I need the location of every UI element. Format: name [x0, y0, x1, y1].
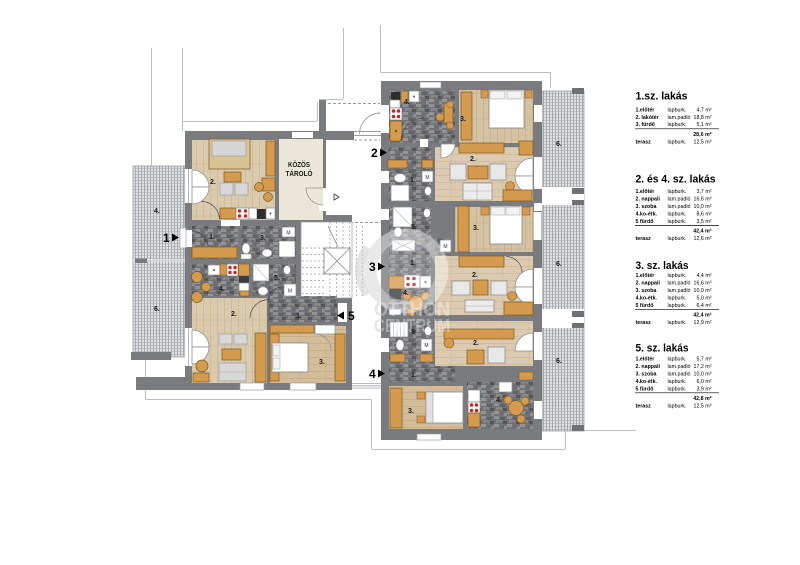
svg-text:lapburk.: lapburk.: [668, 236, 687, 242]
svg-text:28,6 m²: 28,6 m²: [693, 132, 711, 138]
svg-text:5 fürdő: 5 fürdő: [636, 303, 655, 309]
svg-text:3.: 3.: [473, 225, 479, 232]
svg-text:3,9 m²: 3,9 m²: [696, 387, 711, 393]
svg-text:4.: 4.: [496, 397, 502, 404]
svg-text:1.: 1.: [410, 260, 416, 267]
svg-text:KÖZÖS: KÖZÖS: [288, 160, 310, 169]
svg-text:10,0 m²: 10,0 m²: [694, 288, 712, 294]
svg-text:1: 1: [163, 231, 170, 245]
svg-text:5: 5: [411, 329, 415, 336]
svg-text:10,0 m²: 10,0 m²: [694, 372, 712, 378]
svg-text:6,0 m²: 6,0 m²: [696, 379, 711, 385]
svg-text:1.: 1.: [411, 372, 417, 379]
svg-text:4.ko-étk.: 4.ko-étk.: [636, 296, 658, 302]
svg-text:M: M: [286, 231, 290, 237]
svg-text:lam.padló: lam.padló: [668, 197, 691, 203]
svg-text:terasz: terasz: [636, 236, 652, 242]
svg-text:2. nappali: 2. nappali: [636, 281, 661, 287]
svg-text:42,4 m²: 42,4 m²: [693, 228, 711, 234]
svg-text:M: M: [288, 289, 292, 295]
svg-text:lapburk.: lapburk.: [668, 357, 687, 363]
svg-text:lapburk.: lapburk.: [668, 189, 687, 195]
svg-text:2.: 2.: [470, 156, 476, 163]
svg-text:lam.padló: lam.padló: [668, 281, 691, 287]
svg-text:lapburk.: lapburk.: [668, 140, 687, 146]
svg-text:4: 4: [369, 367, 376, 381]
svg-text:lapburk.: lapburk.: [668, 379, 687, 385]
svg-text:3. szoba: 3. szoba: [636, 288, 657, 294]
svg-text:1.előtér: 1.előtér: [636, 108, 655, 114]
svg-text:1.: 1.: [209, 234, 215, 241]
svg-text:3. fürdő: 3. fürdő: [636, 122, 656, 128]
svg-text:TÁROLÓ: TÁROLÓ: [286, 169, 313, 178]
svg-text:4.: 4.: [219, 286, 225, 293]
svg-text:12,9 m²: 12,9 m²: [694, 320, 712, 326]
svg-text:M: M: [425, 175, 429, 181]
svg-text:42,4 m²: 42,4 m²: [693, 312, 711, 318]
svg-text:5: 5: [348, 309, 355, 323]
svg-text:5.: 5.: [274, 275, 280, 282]
svg-text:lapburk.: lapburk.: [668, 108, 687, 114]
svg-text:M: M: [443, 244, 447, 250]
svg-text:3.: 3.: [260, 235, 266, 242]
svg-text:1.előtér: 1.előtér: [636, 357, 655, 363]
svg-text:5.: 5.: [411, 224, 417, 231]
svg-text:2: 2: [371, 146, 378, 160]
svg-text:2.: 2.: [472, 272, 478, 279]
svg-text:2. nappali: 2. nappali: [636, 364, 661, 370]
svg-text:2.: 2.: [473, 340, 479, 347]
svg-text:1.előtér: 1.előtér: [636, 189, 655, 195]
svg-text:18,8 m²: 18,8 m²: [694, 115, 712, 121]
svg-text:12,6 m²: 12,6 m²: [694, 236, 712, 242]
svg-text:16,6 m²: 16,6 m²: [694, 197, 712, 203]
svg-text:lam.padló: lam.padló: [668, 372, 691, 378]
svg-text:lapburk.: lapburk.: [668, 212, 687, 218]
svg-text:lapburk.: lapburk.: [668, 296, 687, 302]
svg-text:10,0 m²: 10,0 m²: [694, 204, 712, 210]
svg-text:lapburk.: lapburk.: [668, 320, 687, 326]
svg-text:2. és 4. sz. lakás: 2. és 4. sz. lakás: [636, 174, 716, 186]
svg-text:4.ko-étk.: 4.ko-étk.: [636, 379, 658, 385]
svg-text:16,6 m²: 16,6 m²: [694, 281, 712, 287]
svg-text:4.ko-étk.: 4.ko-étk.: [636, 212, 658, 218]
svg-text:3: 3: [369, 260, 376, 274]
svg-text:3.: 3.: [408, 408, 414, 415]
svg-text:terasz: terasz: [636, 403, 652, 409]
svg-text:1.sz. lakás: 1.sz. lakás: [636, 91, 688, 103]
svg-text:8,6 m²: 8,6 m²: [696, 212, 711, 218]
svg-text:17,2 m²: 17,2 m²: [694, 364, 712, 370]
svg-text:lam.padló: lam.padló: [668, 364, 691, 370]
svg-text:6.: 6.: [556, 141, 562, 148]
svg-text:lapburk.: lapburk.: [668, 219, 687, 225]
svg-text:2.: 2.: [231, 311, 237, 318]
svg-text:5,7 m²: 5,7 m²: [696, 357, 711, 363]
svg-text:12,5 m²: 12,5 m²: [694, 140, 712, 146]
svg-text:6.: 6.: [154, 306, 160, 313]
svg-text:2. nappali: 2. nappali: [636, 197, 661, 203]
svg-text:M: M: [424, 343, 428, 349]
svg-text:5 fürdő: 5 fürdő: [636, 219, 655, 225]
svg-text:5,0 m²: 5,0 m²: [696, 296, 711, 302]
svg-text:6.: 6.: [556, 261, 562, 268]
svg-text:lapburk.: lapburk.: [668, 387, 687, 393]
svg-text:3.: 3.: [460, 116, 466, 123]
svg-text:3. sz. lakás: 3. sz. lakás: [636, 260, 689, 272]
svg-text:lapburk.: lapburk.: [668, 303, 687, 309]
svg-text:6,4 m²: 6,4 m²: [696, 303, 711, 309]
svg-text:4.: 4.: [154, 208, 160, 215]
svg-text:lapburk.: lapburk.: [668, 403, 687, 409]
svg-text:5,1 m²: 5,1 m²: [696, 122, 711, 128]
svg-text:terasz: terasz: [636, 320, 652, 326]
svg-text:3,7 m²: 3,7 m²: [696, 189, 711, 195]
svg-text:12,5 m²: 12,5 m²: [694, 403, 712, 409]
svg-text:terasz: terasz: [636, 140, 652, 146]
svg-text:lapburk.: lapburk.: [668, 273, 687, 279]
svg-text:3. szoba: 3. szoba: [636, 204, 657, 210]
svg-text:2.: 2.: [210, 179, 216, 186]
svg-text:6.: 6.: [556, 358, 562, 365]
svg-text:3. szoba: 3. szoba: [636, 372, 657, 378]
svg-text:lam.padló: lam.padló: [668, 204, 691, 210]
svg-text:1.előtér: 1.előtér: [636, 273, 655, 279]
svg-text:1.: 1.: [410, 177, 416, 184]
svg-text:4.: 4.: [403, 290, 409, 297]
svg-text:5 fürdő: 5 fürdő: [636, 387, 655, 393]
svg-text:3,5 m²: 3,5 m²: [696, 219, 711, 225]
svg-text:4,4 m²: 4,4 m²: [696, 273, 711, 279]
svg-text:42,8 m²: 42,8 m²: [693, 396, 711, 402]
svg-text:4,7 m²: 4,7 m²: [696, 108, 711, 114]
svg-text:lapburk.: lapburk.: [668, 122, 687, 128]
svg-text:5. sz. lakás: 5. sz. lakás: [636, 343, 689, 355]
svg-text:lam.padló: lam.padló: [668, 288, 691, 294]
svg-text:lam.padló: lam.padló: [668, 115, 691, 121]
svg-text:1.: 1.: [296, 313, 302, 320]
svg-text:3.: 3.: [319, 359, 325, 366]
svg-text:4.: 4.: [404, 99, 410, 106]
svg-text:2. lakótér: 2. lakótér: [636, 115, 659, 121]
